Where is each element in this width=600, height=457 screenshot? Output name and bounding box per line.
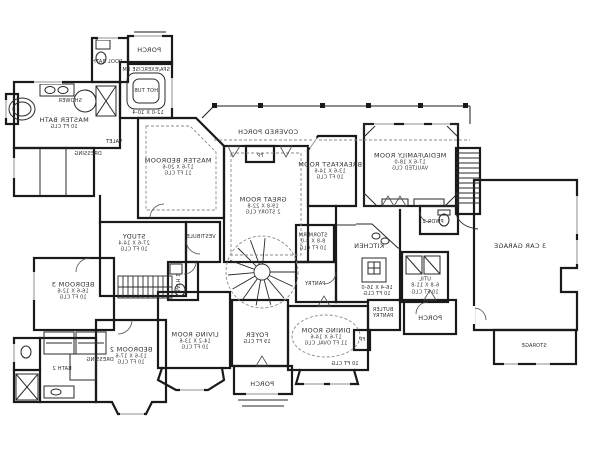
room-name: MASTER BEDROOM [145, 157, 212, 165]
room-name: POOL BATH [92, 59, 122, 65]
room-clg: 10 FT CLG [299, 245, 328, 251]
fireplace-label-dining: FP [359, 337, 365, 343]
room-label-shower: SHOWER [58, 98, 82, 104]
room-label-bedroom3: BEDROOM 316-6 X 12-610 FT CLG [52, 281, 95, 302]
room-label-vestibule: VESTIBULE [186, 234, 215, 240]
note-bay-ceiling: 10 FT CLG [331, 361, 358, 367]
room-name: BUTLER PANTRY [368, 307, 398, 320]
room-label-foyer: FOYER19 FT CLG [243, 331, 270, 345]
room-name: GREAT ROOM [240, 196, 287, 204]
room-clg: 10 FT CLG [52, 295, 95, 301]
room-clg: 10 FT CLG [411, 289, 439, 295]
room-name: MEDIA/FAMILY ROOM [374, 152, 447, 160]
room-label-dressing-master: DRESSING [74, 151, 102, 157]
room-clg: VAULTED CLG [374, 166, 447, 172]
room-clg: 11 FT CLG [145, 171, 212, 177]
room-name: MASTER BATH [39, 116, 88, 124]
room-clg: 19 FT CLG [243, 339, 270, 345]
room-label-dressing2: DRESSING [86, 357, 114, 363]
floor-plan: PORCH POOL BATH SPA/EXERCISE RM HOT TUB … [0, 0, 600, 457]
room-label-bath2: BATH 2 [52, 366, 71, 372]
room-label-breakfast: BREAKFAST ROOM13-6 X 14-610 FT CLG [298, 161, 362, 182]
room-name: 3 CAR GARAGE [494, 242, 547, 250]
room-label-bath1: BATH 1 [174, 273, 180, 292]
room-label-utility: UTIL6-8 X 11-810 FT CLG [411, 277, 439, 296]
room-label-pool-bath: POOL BATH [92, 59, 122, 65]
room-clg: 10 FT CLG [171, 345, 219, 351]
room-label-porch-rear: PORCH [418, 314, 442, 322]
room-label-porch-top: PORCH [137, 46, 161, 54]
fixtures [9, 40, 458, 406]
room-name: LIVING ROOM [171, 331, 219, 339]
room-name: DRESSING [74, 151, 102, 157]
room-name: SPA/EXERCISE RM [122, 67, 170, 73]
back-staircase [456, 153, 480, 229]
room-dims: 6-8 X 11-8 [411, 283, 439, 289]
room-clg: 10 FT CLG [298, 175, 362, 181]
room-name: HOT TUB [134, 88, 158, 94]
floorplan-drawing [0, 0, 600, 457]
room-name: COVERED PORCH [238, 128, 298, 136]
room-label-dining: DINING ROOM17-6 X 14-611 FT OVAL CLG [301, 327, 350, 348]
room-name: BEDROOM 3 [52, 281, 95, 289]
room-name: VESTIBULE [186, 234, 215, 240]
room-label-kitchen-dims: 16-4 X 16-010 FT CLG [361, 285, 393, 298]
room-label-valet: VALET [106, 139, 123, 145]
room-label-spa-dims: 12-0 X 10-4 [132, 110, 164, 116]
room-name: PANTRY [305, 281, 325, 287]
room-label-hot-tub: HOT TUB [134, 88, 158, 94]
room-name: FP [257, 153, 263, 159]
room-label-garage: 3 CAR GARAGE [494, 242, 547, 250]
room-label-great-room: GREAT ROOM19-8 X 22-82 STORY CLG [240, 196, 287, 217]
room-clg: 10 FT CLG [118, 247, 150, 253]
room-name: STORAGE [521, 343, 546, 349]
spiral-staircase [226, 236, 298, 308]
room-name: BEDROOM 2 [110, 346, 153, 354]
room-label-storm-room: STORM RM8-8 X 8-010 FT CLG [299, 233, 328, 252]
kitchen-island [362, 258, 386, 282]
room-label-media-family: MEDIA/FAMILY ROOM17-6 X 18-0VAULTED CLG [374, 152, 447, 173]
room-name: FP [359, 337, 365, 343]
room-label-storage: STORAGE [521, 343, 546, 349]
room-dims: 8-8 X 8-0 [299, 239, 328, 245]
room-label-spa: SPA/EXERCISE RM [122, 67, 170, 73]
room-name: PORCH [250, 380, 274, 388]
room-name: SHOWER [58, 98, 82, 104]
room-label-study: STUDY27-6 X 14-410 FT CLG [118, 233, 150, 254]
covered-porch-outline [134, 32, 470, 124]
room-name: PORCH [137, 46, 161, 54]
room-name: DRESSING [86, 357, 114, 363]
room-label-master-bedroom: MASTER BEDROOM17-6 X 20-611 FT CLG [145, 157, 212, 178]
room-label-master-bath: MASTER BATH10 FT CLG [39, 116, 88, 130]
room-clg: 10 FT CLG [39, 124, 88, 130]
room-name: VALET [106, 139, 123, 145]
room-label-kitchen: KITCHEN [354, 242, 384, 250]
room-name: STUDY [118, 233, 150, 241]
room-label-bedroom2: BEDROOM 213-6 X 17-610 FT CLG [110, 346, 153, 367]
room-label-porch-front: PORCH [250, 380, 274, 388]
room-name: BREAKFAST ROOM [298, 161, 362, 169]
room-clg: 10 FT CLG [361, 291, 393, 297]
main-staircase [118, 276, 172, 298]
room-name: PWDR 2 [422, 219, 443, 225]
room-name: FOYER [243, 331, 270, 339]
room-label-pantry: PANTRY [305, 281, 325, 287]
room-name: BATH 2 [52, 366, 71, 372]
room-clg: 2 STORY CLG [240, 210, 287, 216]
fireplace-label-great-room: FP [257, 153, 263, 159]
room-name: DINING ROOM [301, 327, 350, 335]
room-clg: 11 FT OVAL CLG [301, 341, 350, 347]
room-name: KITCHEN [354, 242, 384, 250]
room-label-butler-pantry: BUTLER PANTRY [368, 307, 398, 320]
room-dims: 12-0 X 10-4 [132, 110, 164, 116]
room-label-living: LIVING ROOM14-2 X 13-610 FT CLG [171, 331, 219, 352]
room-clg: 10 FT CLG [110, 360, 153, 366]
room-clg: 10 FT CLG [331, 361, 358, 367]
room-name: BATH 1 [174, 273, 180, 292]
room-label-covered-porch: COVERED PORCH [238, 128, 298, 136]
room-label-pwdr2: PWDR 2 [422, 219, 443, 225]
room-name: PORCH [418, 314, 442, 322]
